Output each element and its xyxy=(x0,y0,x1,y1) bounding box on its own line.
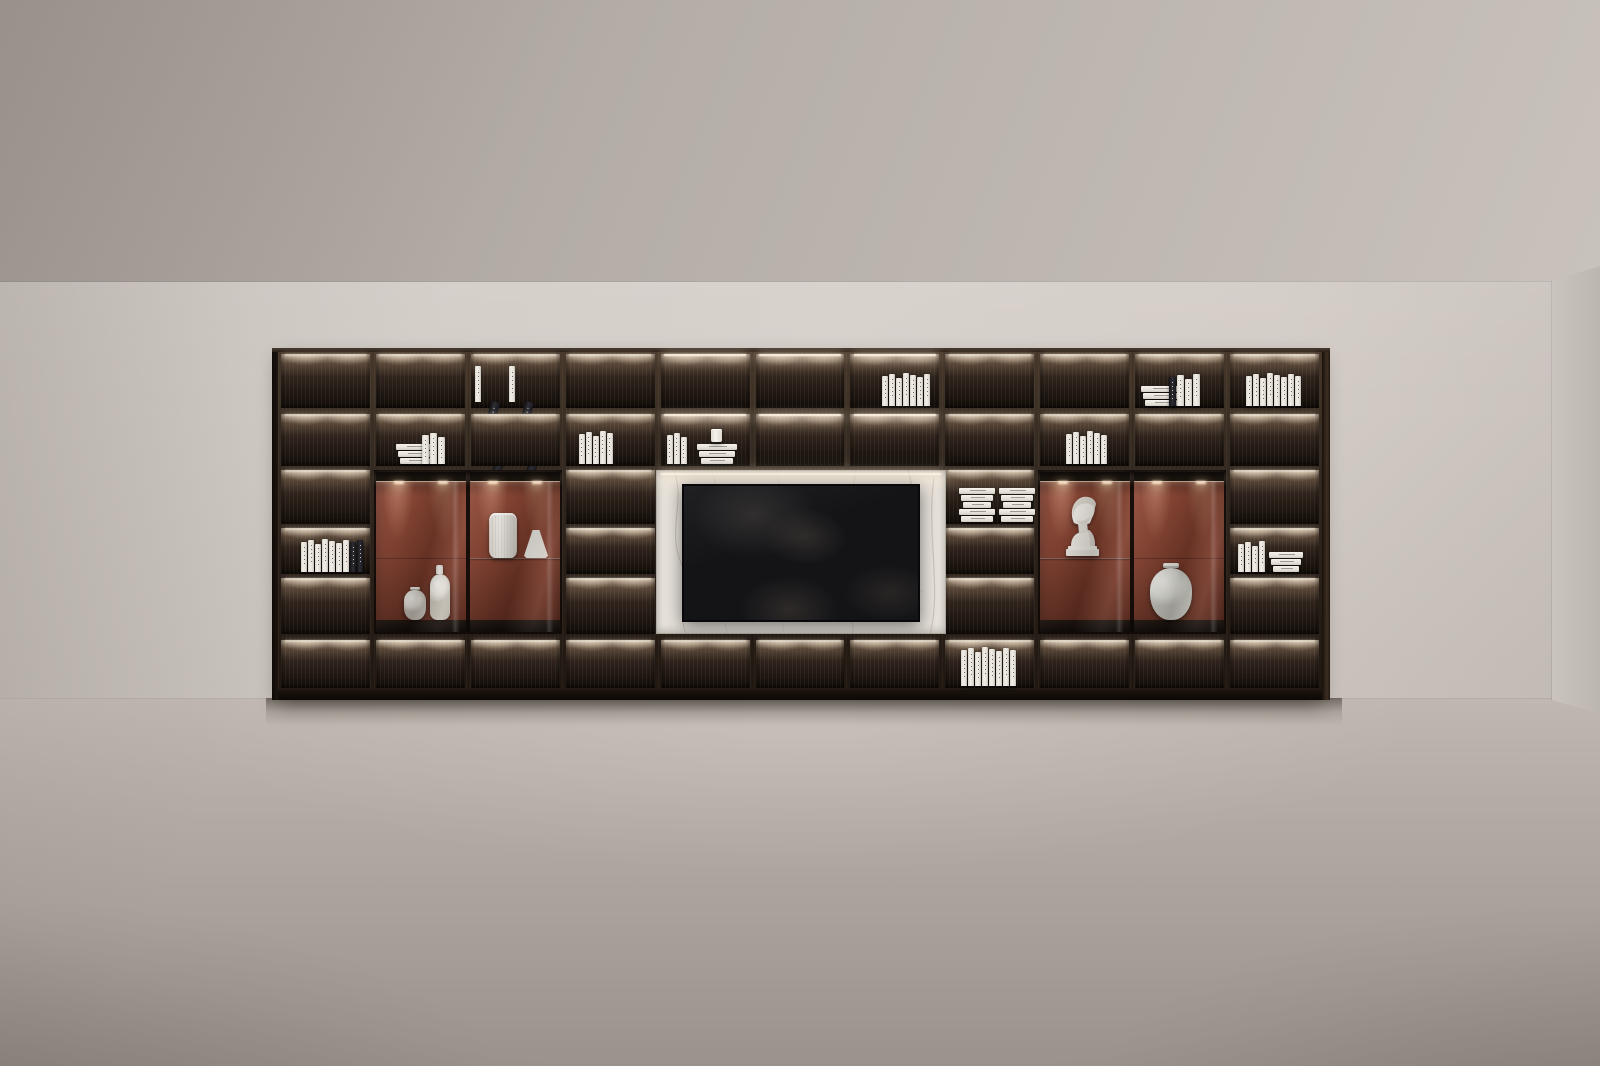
book-spine-text xyxy=(964,656,965,678)
book-spine-text xyxy=(1076,437,1077,456)
book-spine-text xyxy=(1263,382,1264,399)
book-spine-text xyxy=(710,460,724,461)
book xyxy=(1260,378,1266,406)
book-spine-text xyxy=(1006,654,1007,677)
spotlight xyxy=(1058,481,1068,484)
book-spine-text xyxy=(1097,438,1098,457)
book xyxy=(968,648,974,686)
book xyxy=(989,649,995,686)
shelf-cell xyxy=(1135,414,1224,466)
book xyxy=(896,378,902,406)
glass-door xyxy=(1132,470,1226,634)
book xyxy=(422,435,429,464)
book-spine-text xyxy=(478,372,479,394)
cabinet-top-rail xyxy=(376,472,466,481)
book-spine-text xyxy=(972,504,985,505)
book-group-leaning xyxy=(509,366,549,406)
book-group xyxy=(579,431,613,464)
book xyxy=(697,444,737,450)
shelf-cell xyxy=(281,354,370,408)
book xyxy=(336,543,342,572)
book-spine-text xyxy=(346,545,347,564)
book-spine-text xyxy=(1011,518,1025,519)
book-stack xyxy=(1269,551,1303,572)
spotlight xyxy=(1102,481,1112,484)
shelf-cell xyxy=(566,354,655,408)
book-group xyxy=(961,647,1016,686)
book xyxy=(681,437,687,464)
shelf-cell xyxy=(945,414,1034,466)
shelf-cell xyxy=(281,528,370,574)
book xyxy=(959,488,995,494)
shelf-cell xyxy=(945,528,1034,574)
book-spine-text xyxy=(1012,504,1025,505)
book xyxy=(1252,546,1258,572)
book-spine-text xyxy=(1010,490,1026,491)
book-spine-text xyxy=(913,380,914,399)
book xyxy=(1101,435,1107,464)
shelf-cell xyxy=(281,470,370,524)
book xyxy=(315,544,321,572)
shelf-cell xyxy=(566,470,655,524)
book xyxy=(1001,495,1033,501)
book xyxy=(1295,376,1301,406)
book-spine-text xyxy=(906,378,907,398)
book-spine-text xyxy=(985,653,986,676)
spotlight xyxy=(532,481,542,484)
shelf-cell xyxy=(945,470,1034,524)
shelf-cell xyxy=(756,414,845,466)
book-group xyxy=(396,424,476,466)
book xyxy=(322,539,328,572)
book-spine-text xyxy=(970,490,986,491)
book-spine-text xyxy=(1256,379,1257,398)
shelf-cell xyxy=(850,640,939,688)
book xyxy=(438,437,445,464)
book-group xyxy=(667,433,687,464)
tv-screen xyxy=(682,484,920,622)
book xyxy=(1003,648,1009,686)
shelf-cell xyxy=(756,640,845,688)
book-spine-text xyxy=(683,441,684,457)
book-spine-text xyxy=(927,379,928,398)
book-spine-text xyxy=(971,518,985,519)
book-stack xyxy=(697,443,737,464)
book xyxy=(961,495,993,501)
book-spine-text xyxy=(1011,497,1025,498)
book xyxy=(999,509,1035,515)
book-spine-text xyxy=(360,545,361,564)
book-spine-text xyxy=(971,497,985,498)
book-spine-text xyxy=(1281,568,1293,569)
book xyxy=(999,488,1035,494)
book-spine-text xyxy=(999,657,1000,678)
book xyxy=(910,375,916,406)
book xyxy=(1087,431,1093,464)
book xyxy=(579,434,585,464)
book xyxy=(607,433,613,464)
book-spine-text xyxy=(1249,381,1250,399)
book xyxy=(1238,544,1244,572)
book-spine-text xyxy=(1083,440,1084,457)
shelf-cell xyxy=(945,578,1034,634)
book-spine-text xyxy=(1155,402,1169,403)
book xyxy=(357,540,363,572)
book-spine-text xyxy=(311,545,312,564)
led-strip xyxy=(661,473,941,475)
book xyxy=(961,650,967,686)
book-spine-text xyxy=(353,547,354,565)
book-group xyxy=(1246,373,1301,406)
book xyxy=(1001,516,1033,522)
book-stack xyxy=(999,487,1035,522)
book xyxy=(1288,374,1294,406)
shelf-cell xyxy=(850,414,939,466)
book xyxy=(1003,502,1031,508)
book-spine-text xyxy=(1090,436,1091,456)
book-stack xyxy=(959,487,995,522)
book-group xyxy=(1238,532,1318,574)
book-spine-text xyxy=(1279,554,1294,555)
shelf-cell xyxy=(1040,414,1129,466)
book-spine-text xyxy=(1255,550,1256,566)
book xyxy=(301,542,307,572)
book-spine-text xyxy=(1154,395,1170,396)
book-spine-text xyxy=(1298,381,1299,399)
book xyxy=(889,374,895,406)
book xyxy=(1185,379,1192,406)
book xyxy=(903,373,909,406)
book-spine-text xyxy=(1172,382,1173,399)
shelf-cell xyxy=(756,354,845,408)
book-spine-text xyxy=(709,446,727,447)
book xyxy=(1177,375,1184,406)
book xyxy=(982,647,988,686)
cabinet-top-rail xyxy=(470,472,560,481)
shelf-cell xyxy=(566,640,655,688)
shelf-cell xyxy=(376,354,465,408)
book-spine-text xyxy=(971,654,972,677)
shelf-cell xyxy=(945,640,1034,688)
book-spine-text xyxy=(669,440,670,457)
shelf-cell xyxy=(1135,640,1224,688)
shelf-cell xyxy=(661,414,750,466)
book-group xyxy=(667,418,753,466)
book xyxy=(924,374,930,406)
book-spine-text xyxy=(920,382,921,399)
shelf-cell xyxy=(1230,354,1319,408)
book-group xyxy=(301,539,363,572)
book xyxy=(350,542,356,572)
unit-plinth xyxy=(278,690,1322,700)
glass-door xyxy=(1038,470,1132,634)
display-cabinet-left xyxy=(374,470,562,634)
book xyxy=(882,376,888,406)
book-spine-text xyxy=(1188,383,1189,399)
book-spine-text xyxy=(318,548,319,565)
book-spine-text xyxy=(304,547,305,565)
book-spine-text xyxy=(512,372,513,394)
display-cabinet-right xyxy=(1038,470,1226,634)
book xyxy=(1267,373,1273,406)
book xyxy=(475,366,481,402)
book-group xyxy=(882,373,930,406)
spotlight xyxy=(1152,481,1162,484)
cup xyxy=(711,429,722,442)
book xyxy=(699,451,735,457)
shelf-cell xyxy=(471,414,560,466)
spotlight xyxy=(438,481,448,484)
book-spine-text xyxy=(899,382,900,399)
spotlight xyxy=(488,481,498,484)
book-spine-text xyxy=(609,438,610,457)
book xyxy=(996,651,1002,686)
book xyxy=(961,516,993,522)
book-spine-text xyxy=(1248,547,1249,565)
book xyxy=(963,502,991,508)
shelf-cell xyxy=(471,640,560,688)
book-spine-text xyxy=(970,511,986,512)
book xyxy=(674,433,680,464)
shelf-cell xyxy=(1230,528,1319,574)
book-spine-text xyxy=(709,453,725,454)
shelf-cell xyxy=(281,640,370,688)
shelf-cell xyxy=(1230,578,1319,634)
book-spine-text xyxy=(992,655,993,677)
book xyxy=(1193,374,1200,406)
book-group xyxy=(1238,541,1265,572)
book xyxy=(1259,541,1265,572)
book xyxy=(1094,433,1100,464)
shelf-cell xyxy=(661,640,750,688)
book-spine-text xyxy=(1069,439,1070,457)
book-spine-text xyxy=(339,548,340,565)
shelf-cell xyxy=(471,354,560,408)
unit-top-edge xyxy=(272,348,1330,352)
book xyxy=(329,541,335,572)
book xyxy=(1080,436,1086,464)
book xyxy=(1273,566,1299,572)
book-spine-text xyxy=(1291,379,1292,398)
book xyxy=(1066,434,1072,464)
book xyxy=(975,652,981,686)
book xyxy=(586,432,592,464)
book-spine-text xyxy=(441,441,442,457)
book xyxy=(1073,432,1079,464)
book xyxy=(1246,376,1252,406)
shelf-cell xyxy=(850,354,939,408)
book xyxy=(667,435,673,464)
shelving-unit xyxy=(0,0,1600,1066)
shelf-cell xyxy=(1230,470,1319,524)
book-spine-text xyxy=(978,657,979,677)
book-group xyxy=(1169,374,1200,406)
shelf-cell xyxy=(281,578,370,634)
shelf-cell xyxy=(376,640,465,688)
book xyxy=(308,540,314,572)
shelf-cell xyxy=(566,414,655,466)
book-spine-text xyxy=(425,440,426,457)
book xyxy=(917,377,923,406)
book-spine-text xyxy=(1010,511,1026,512)
book-spine-text xyxy=(409,460,423,461)
book-spine-text xyxy=(676,438,677,457)
book xyxy=(593,436,599,464)
book xyxy=(1269,552,1303,558)
book-spine-text xyxy=(325,544,326,564)
shelf-cell xyxy=(281,414,370,466)
book xyxy=(509,366,515,402)
book-spine-text xyxy=(1262,546,1263,565)
room-scene xyxy=(0,0,1600,1066)
spotlight xyxy=(394,481,404,484)
cabinet-top-rail xyxy=(1040,472,1130,481)
book xyxy=(343,540,349,572)
shelf-cell xyxy=(1040,640,1129,688)
book xyxy=(430,433,437,464)
book xyxy=(1169,377,1176,406)
shelf-cell xyxy=(661,354,750,408)
book-spine-text xyxy=(892,379,893,398)
shelf-cell xyxy=(566,528,655,574)
unit-right-side xyxy=(1322,352,1330,700)
book-group xyxy=(1141,366,1221,408)
book xyxy=(1253,374,1259,406)
shelf-cell xyxy=(376,414,465,466)
book-group xyxy=(422,433,445,464)
glass-door xyxy=(468,470,562,634)
shelf-cell xyxy=(1230,414,1319,466)
glass-door xyxy=(374,470,468,634)
unit-left-side xyxy=(272,352,278,700)
book xyxy=(701,458,733,464)
book-spine-text xyxy=(1180,380,1181,399)
book-spine-text xyxy=(581,439,582,457)
book xyxy=(959,509,995,515)
book-group xyxy=(1066,431,1107,464)
book-spine-text xyxy=(1280,561,1294,562)
book-spine-text xyxy=(1013,656,1014,678)
book-spine-text xyxy=(1196,379,1197,398)
book xyxy=(1245,542,1251,572)
shelf-cell xyxy=(1230,640,1319,688)
book xyxy=(1274,375,1280,406)
book-spine-text xyxy=(885,381,886,399)
book-spine-text xyxy=(595,440,596,457)
book-spine-text xyxy=(602,436,603,456)
book-spine-text xyxy=(1270,378,1271,398)
book-spine-text xyxy=(1241,548,1242,565)
shelf-cell xyxy=(1040,354,1129,408)
book-spine-text xyxy=(433,438,434,457)
book-spine-text xyxy=(332,546,333,565)
book-spine-text xyxy=(1277,380,1278,399)
shelf-cell xyxy=(1135,354,1224,408)
book-spine-text xyxy=(1284,382,1285,399)
book xyxy=(600,431,606,464)
spotlight xyxy=(1196,481,1206,484)
shelf-cell xyxy=(566,578,655,634)
book-spine-text xyxy=(588,437,589,456)
book xyxy=(1281,377,1287,406)
book xyxy=(1010,650,1016,686)
cabinet-top-rail xyxy=(1134,472,1224,481)
book xyxy=(1271,559,1301,565)
shelf-cell xyxy=(945,354,1034,408)
book-spine-text xyxy=(1104,440,1105,457)
decor xyxy=(930,478,935,634)
